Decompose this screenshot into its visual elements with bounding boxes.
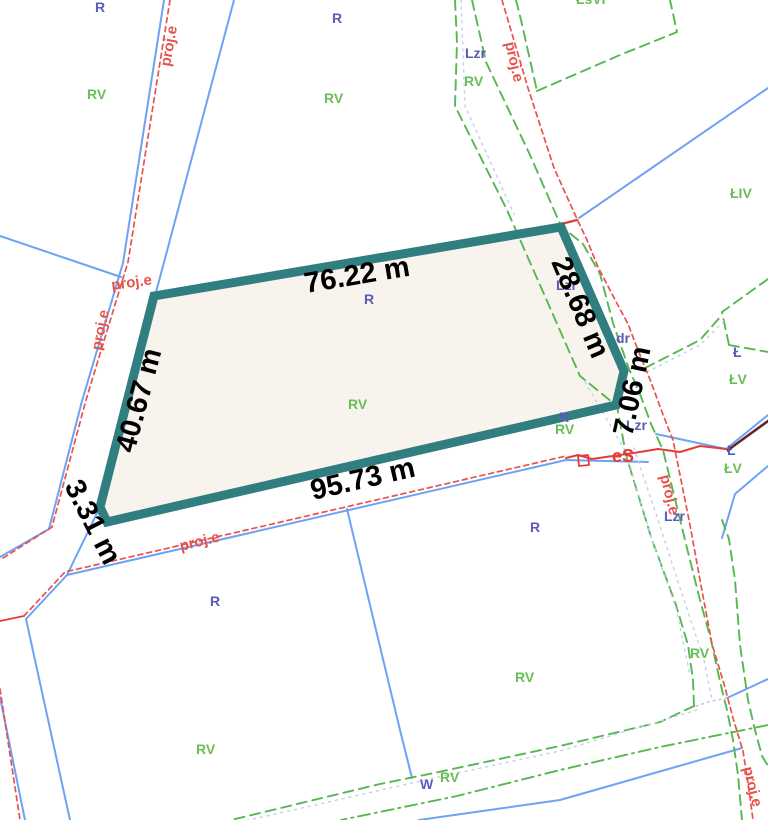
svg-text:RV: RV xyxy=(690,645,710,661)
svg-text:W: W xyxy=(420,776,434,792)
svg-text:RV: RV xyxy=(515,669,535,685)
svg-text:ŁsVI: ŁsVI xyxy=(576,0,606,7)
svg-text:ŁV: ŁV xyxy=(729,371,748,387)
svg-text:RV: RV xyxy=(464,73,484,89)
svg-text:RV: RV xyxy=(348,396,368,412)
svg-text:R: R xyxy=(364,291,374,307)
svg-text:RV: RV xyxy=(324,90,344,106)
svg-text:RV: RV xyxy=(555,421,575,437)
svg-text:R: R xyxy=(95,0,105,15)
svg-text:Ł: Ł xyxy=(727,442,736,458)
svg-text:R: R xyxy=(210,593,220,609)
svg-text:RV: RV xyxy=(440,769,460,785)
svg-text:Lzr: Lzr xyxy=(465,45,487,61)
svg-text:dr: dr xyxy=(616,330,631,346)
svg-text:R: R xyxy=(530,519,540,535)
svg-text:RV: RV xyxy=(196,741,216,757)
svg-text:Ł: Ł xyxy=(733,344,742,360)
svg-text:R: R xyxy=(332,10,342,26)
svg-text:ŁV: ŁV xyxy=(724,460,743,476)
svg-text:RV: RV xyxy=(87,86,107,102)
svg-text:ŁIV: ŁIV xyxy=(730,185,752,201)
svg-text:eS: eS xyxy=(612,446,634,466)
